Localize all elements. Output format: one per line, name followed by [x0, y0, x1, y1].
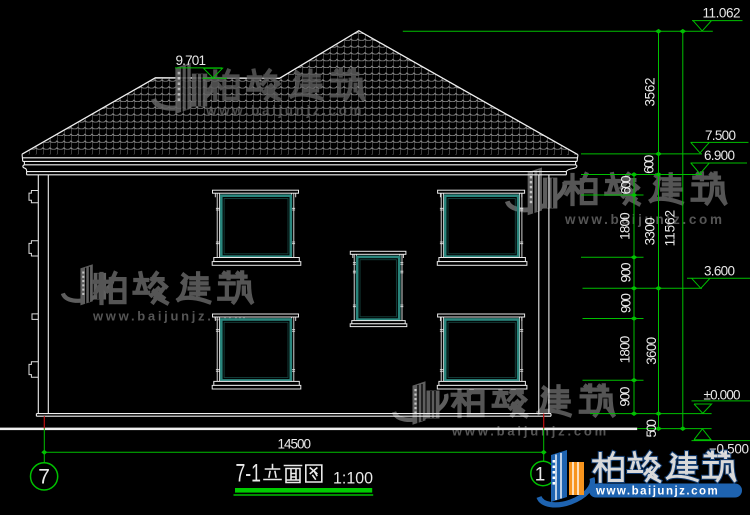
svg-text:6.900: 6.900 — [704, 148, 735, 163]
svg-text:www.baijunjz.com: www.baijunjz.com — [595, 486, 719, 498]
svg-text:1800: 1800 — [618, 336, 633, 364]
svg-text:1:100: 1:100 — [333, 469, 373, 487]
svg-text:900: 900 — [618, 387, 633, 407]
svg-text:11562: 11562 — [663, 210, 678, 247]
svg-text:www.baijunjz.com: www.baijunjz.com — [451, 424, 609, 439]
svg-text:9.701: 9.701 — [176, 53, 207, 68]
svg-text:7: 7 — [38, 466, 50, 489]
svg-text:3562: 3562 — [643, 78, 658, 107]
svg-text:3300: 3300 — [643, 217, 658, 245]
svg-text:1800: 1800 — [618, 212, 633, 240]
svg-text:1: 1 — [535, 464, 546, 485]
svg-text:600: 600 — [619, 175, 634, 194]
svg-text:www.baijunjz.com: www.baijunjz.com — [205, 103, 364, 118]
svg-text:900: 900 — [619, 263, 634, 283]
svg-text:7.500: 7.500 — [705, 128, 736, 143]
svg-text:3600: 3600 — [644, 337, 659, 365]
svg-text:7-1: 7-1 — [236, 460, 262, 488]
svg-text:11.062: 11.062 — [703, 5, 741, 20]
svg-text:3.600: 3.600 — [704, 264, 735, 279]
svg-text:500: 500 — [644, 419, 659, 438]
svg-text:−0.500: −0.500 — [709, 441, 749, 456]
svg-text:900: 900 — [619, 293, 634, 313]
svg-text:600: 600 — [642, 155, 657, 174]
svg-text:14500: 14500 — [278, 437, 312, 452]
svg-text:±0.000: ±0.000 — [704, 387, 741, 402]
